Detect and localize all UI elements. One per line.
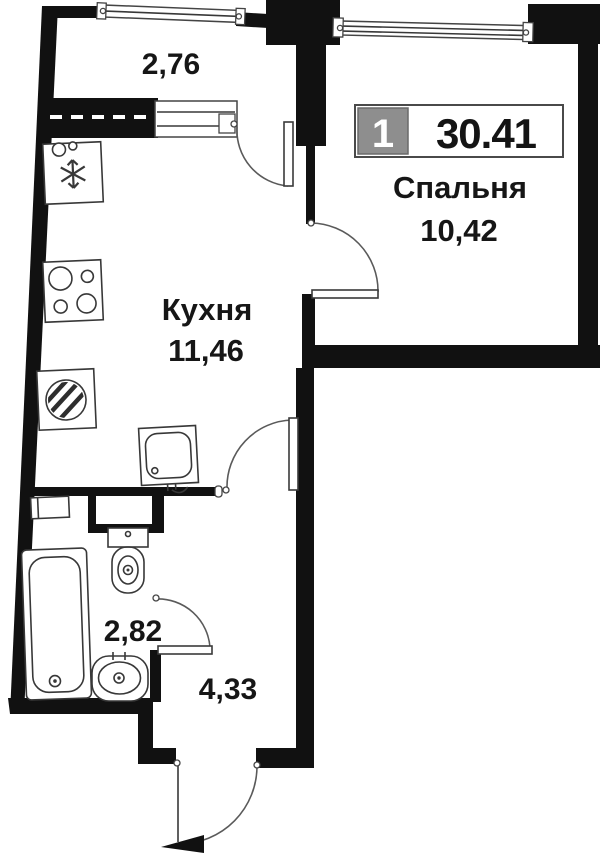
wall-entrance-right: [256, 748, 314, 768]
wall-bathroom-right: [150, 650, 161, 702]
bedroom-name-label: Спальня: [393, 170, 527, 205]
bathtub-icon: [21, 548, 91, 700]
wall-partition-thin: [306, 144, 315, 224]
balcony-door-window-block: [155, 101, 237, 137]
shelf-icon: [31, 496, 70, 519]
bedroom-area-label: 10,42: [420, 213, 498, 248]
balcony-area-label: 2,76: [142, 48, 200, 81]
kitchen-sink-icon: [139, 426, 199, 495]
floor-plan: 1 30.41 2,76 Спальня 10,42 Кухня 11,46 2…: [0, 0, 600, 857]
kitchen-door: [223, 418, 298, 493]
wall-right-outer: [578, 18, 598, 368]
balcony-window: [97, 3, 246, 25]
badge-total-area: 30.41: [436, 110, 537, 157]
area-badge: 1 30.41: [355, 105, 563, 157]
bathroom-sink-icon: [92, 652, 148, 701]
bedroom-door: [308, 220, 378, 298]
hallway-area-label: 4,33: [199, 673, 257, 706]
toilet-icon: [108, 528, 148, 593]
bathroom-area-label: 2,82: [104, 615, 162, 648]
entrance-door-swing-marker: [161, 835, 204, 853]
wall-top-right-block: [528, 4, 600, 44]
kitchen-area-label: 11,46: [168, 333, 244, 368]
wall-hall-left-step: [138, 748, 176, 764]
washing-machine-icon: [37, 367, 97, 430]
wall-bedroom-bottom: [311, 345, 600, 368]
stove-icon: [43, 260, 104, 322]
wall-kitchen-bottom: [24, 487, 218, 496]
kitchen-door-jamb-cap: [215, 486, 222, 497]
fridge-icon: [43, 141, 104, 204]
kitchen-name-label: Кухня: [162, 292, 253, 327]
entrance-door: [161, 760, 260, 853]
balcony-door: [237, 122, 293, 186]
badge-rooms-count: 1: [372, 112, 394, 156]
wall-partition-upper: [296, 38, 326, 146]
floor-plan-svg: 1 30.41 2,76 Спальня 10,42 Кухня 11,46 2…: [0, 0, 600, 857]
bedroom-window: [333, 18, 533, 42]
